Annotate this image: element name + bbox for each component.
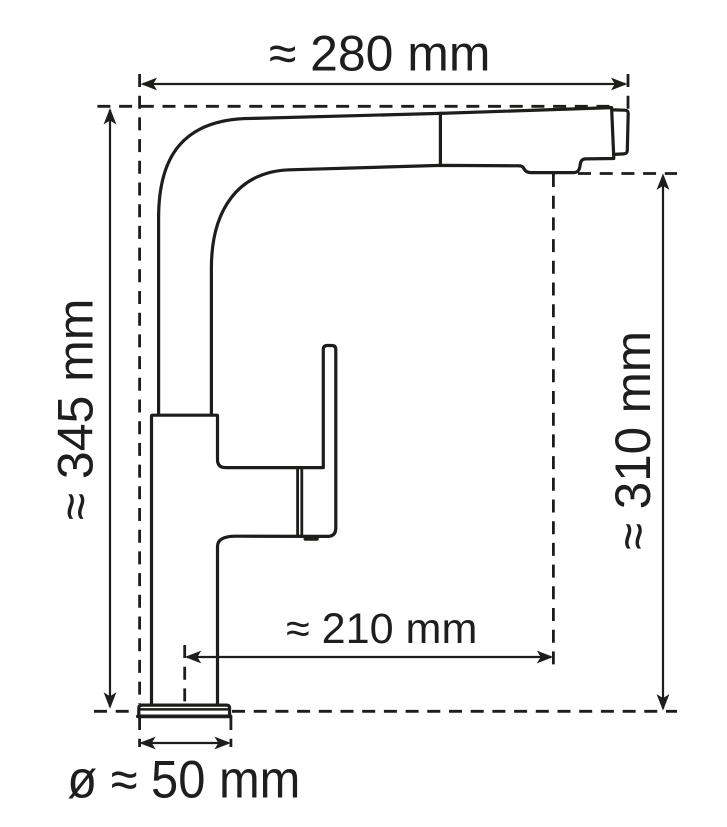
svg-text:≈ 345 mm: ≈ 345 mm — [46, 299, 103, 521]
svg-text:≈ 280 mm: ≈ 280 mm — [269, 24, 491, 81]
svg-text:ø ≈ 50 mm: ø ≈ 50 mm — [67, 751, 300, 810]
svg-text:≈ 210 mm: ≈ 210 mm — [286, 605, 477, 653]
svg-text:≈ 310 mm: ≈ 310 mm — [604, 331, 661, 550]
